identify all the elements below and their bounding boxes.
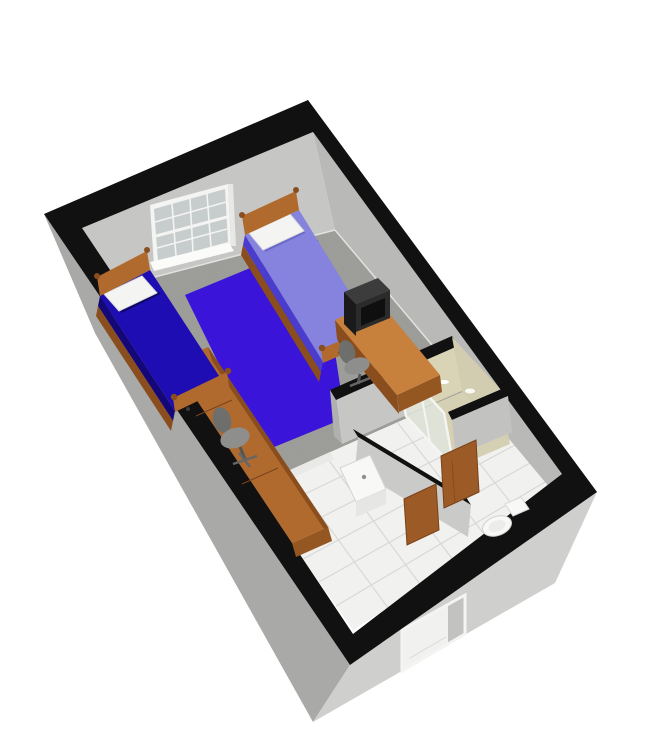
desk-knob-2 bbox=[186, 407, 190, 411]
floorplan-svg bbox=[0, 0, 650, 750]
vanity-faucet bbox=[362, 475, 366, 479]
bed-right-headpost-2 bbox=[293, 187, 299, 193]
bed-right-footpost-1 bbox=[319, 345, 325, 351]
bed-left-headpost-1 bbox=[94, 273, 100, 279]
floorplan-rendering bbox=[0, 0, 650, 750]
shower-soap-dish bbox=[465, 389, 475, 394]
bed-right-headpost-1 bbox=[239, 212, 245, 218]
bed-left-footpost-2 bbox=[225, 368, 231, 374]
bed-left-footpost-1 bbox=[171, 394, 177, 400]
bed-left-headpost-2 bbox=[144, 247, 150, 253]
